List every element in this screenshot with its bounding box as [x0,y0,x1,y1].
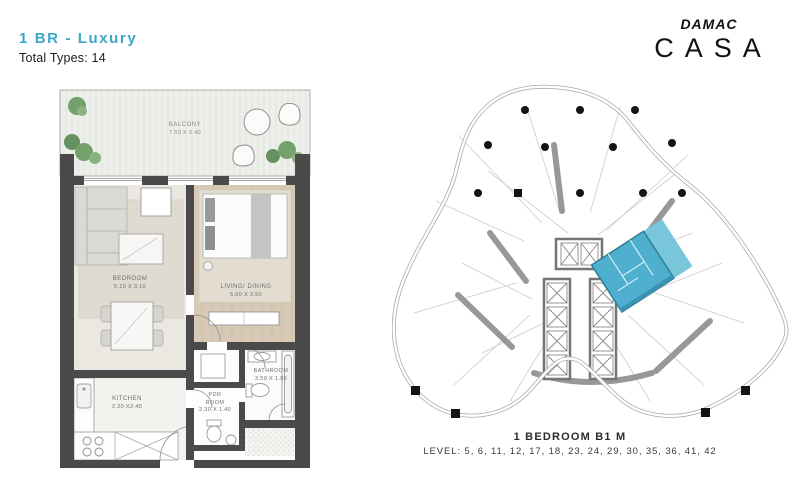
total-types-label: Total Types: 14 [19,51,137,65]
room-dims: 5.10 X 3.10 [97,284,163,292]
pdr-basin [226,435,236,445]
organic-chair [233,145,254,166]
building-keyplan [392,83,792,428]
room-dims: 2.30 X 1.40 [193,407,237,415]
closet-box [201,354,225,378]
room-name: BALCONY [169,122,201,128]
pdr-room-label: PDR ROOM 2.30 X 1.40 [193,392,237,415]
damac-wordmark: DAMAC [634,16,784,32]
bedroom-label: BEDROOM 5.10 X 3.10 [97,276,163,291]
room-dims: 3.50 X 1.90 [243,376,299,384]
unit-type-label: 1 BEDROOM B1 M [370,431,770,443]
bathroom-label: BATHROOM 3.50 X 1.90 [243,368,299,383]
room-dims: 7.50 X 2.40 [135,130,235,138]
page-header: 1 BR - Luxury Total Types: 14 [19,30,137,65]
living-dining-label: LIVING/ DINING 5.60 X 3.50 [209,284,283,299]
damac-casa-logo: DAMAC CASA [634,16,784,64]
unit-floorplan-drawing [57,84,312,476]
balcony-label: BALCONY 7.50 X 2.40 [135,122,235,137]
unit-floorplan: BALCONY 7.50 X 2.40 BEDROOM 5.10 X 3.10 … [57,84,312,476]
bedside-stool [204,262,213,271]
room-dims: 5.60 X 3.50 [209,292,283,300]
room-name: BATHROOM [254,368,289,374]
keyplan-drawing [392,83,792,428]
room-name: LIVING/ DINING [220,284,271,290]
organic-chair [279,103,300,125]
room-name: BEDROOM [113,276,148,282]
brochure-page: 1 BR - Luxury Total Types: 14 DAMAC CASA [0,0,800,498]
tv-console [209,312,279,325]
page-title: 1 BR - Luxury [19,30,137,47]
side-table [141,188,171,216]
kitchen-cabinet-hatch [115,432,178,460]
foyer-floor [245,428,295,456]
room-dims: 2.20 X2.40 [95,404,159,412]
room-name: PDR ROOM [200,392,230,407]
kitchen-label: KITCHEN 2.20 X2.40 [95,396,159,411]
round-table [244,109,270,135]
levels-label: LEVEL: 5, 6, 11, 12, 17, 18, 23, 24, 29,… [370,446,770,457]
casa-wordmark: CASA [634,33,784,64]
room-name: KITCHEN [112,396,142,402]
keyplan-caption: 1 BEDROOM B1 M LEVEL: 5, 6, 11, 12, 17, … [370,431,770,457]
window-lines [84,179,286,181]
